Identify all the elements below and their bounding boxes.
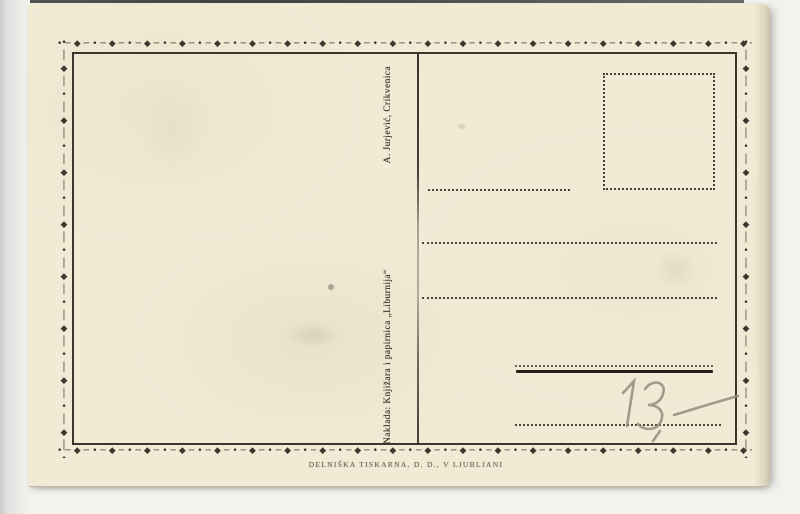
- paper-stain: [654, 248, 698, 292]
- address-line-3: [422, 297, 717, 299]
- publisher-imprint-name: Naklada: Knjižara i papirnica „Liburnija…: [383, 269, 393, 444]
- decorative-border-top: •─◆─•─◆─•─◆─•─◆─•─◆─•─◆─•─◆─•─◆─•─◆─•─◆─…: [57, 38, 752, 51]
- center-divider-line: [417, 54, 419, 444]
- scan-edge-strip: [30, 0, 744, 3]
- digit-1-stroke: [623, 381, 634, 426]
- foxing-spot: [458, 124, 465, 129]
- paper-stain: [286, 322, 340, 348]
- card-deckled-edge: [754, 4, 770, 486]
- stamp-box: [603, 73, 715, 190]
- comma-stroke: [653, 431, 660, 441]
- dash-stroke: [674, 396, 738, 415]
- publisher-imprint-location: A. Jurjević, Crikvenica: [383, 66, 393, 163]
- publisher-imprint: Naklada: Knjižara i papirnica „Liburnija…: [380, 66, 396, 444]
- foxing-spot: [328, 284, 334, 290]
- postcard-back: •─◆─•─◆─•─◆─•─◆─•─◆─•─◆─•─◆─•─◆─•─◆─•─◆─…: [28, 4, 770, 487]
- address-line-1: [428, 189, 570, 191]
- scan-background-left: [0, 0, 30, 514]
- paper-stain: [138, 84, 208, 174]
- decorative-border-bottom: •─◆─•─◆─•─◆─•─◆─•─◆─•─◆─•─◆─•─◆─•─◆─•─◆─…: [57, 445, 752, 458]
- address-line-4: [515, 365, 713, 367]
- address-line-2: [422, 242, 717, 244]
- handwritten-price: [590, 370, 770, 446]
- digit-3-stroke: [638, 383, 664, 429]
- decorative-border-left: •│◆│•│◆│•│◆│•│◆│•│◆│•│◆│•│◆│•│◆│•│◆│•│◆│…: [57, 38, 70, 458]
- printer-imprint: DELNIŠKA TISKARNA, D. D., V LJUBLJANI: [272, 460, 540, 473]
